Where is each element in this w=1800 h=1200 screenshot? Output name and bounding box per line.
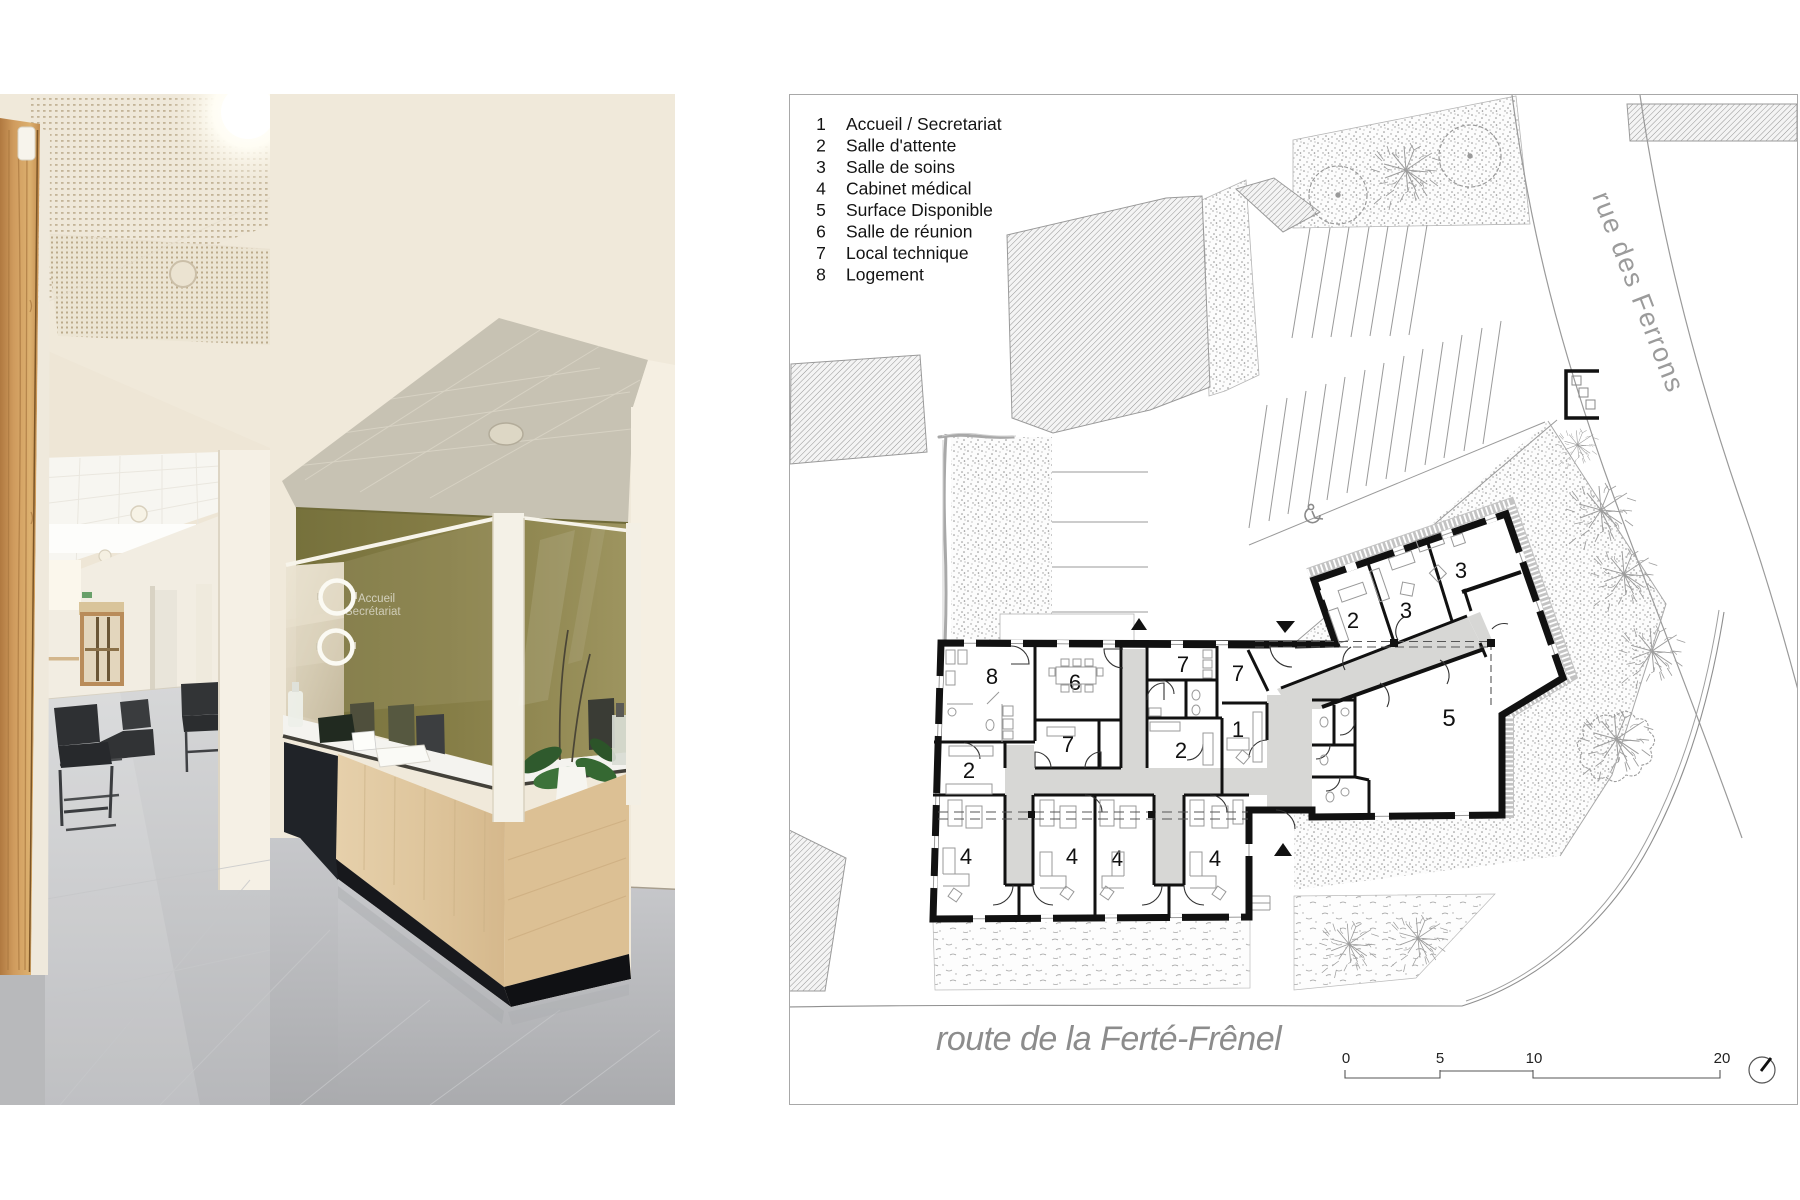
svg-text:2: 2 [1175,738,1187,763]
svg-text:5: 5 [1442,705,1455,732]
svg-text:3: 3 [816,157,826,177]
svg-text:Local technique: Local technique [846,243,969,263]
svg-text:7: 7 [1177,652,1189,677]
svg-text:Salle de soins: Salle de soins [846,157,955,177]
svg-text:2: 2 [1347,608,1359,633]
svg-text:4: 4 [960,844,972,869]
svg-text:2: 2 [816,136,826,156]
svg-text:Salle d'attente: Salle d'attente [846,136,956,156]
svg-text:6: 6 [1069,670,1081,695]
svg-text:2: 2 [963,758,975,783]
svg-text:3: 3 [1455,558,1467,583]
svg-text:Accueil: Accueil [358,593,395,605]
svg-text:3: 3 [1400,598,1412,623]
svg-text:1: 1 [816,114,826,134]
svg-text:5: 5 [816,200,826,220]
svg-text:8: 8 [816,265,826,285]
svg-text:4: 4 [1209,846,1221,871]
svg-text:10: 10 [1526,1050,1543,1067]
svg-text:5: 5 [1436,1050,1444,1067]
svg-text:Secrétariat: Secrétariat [345,606,401,618]
svg-text:4: 4 [1111,846,1123,871]
svg-text:Logement: Logement [846,265,924,285]
svg-text:7: 7 [1232,661,1244,686]
svg-text:20: 20 [1714,1050,1731,1067]
svg-text:Cabinet médical: Cabinet médical [846,179,971,199]
svg-text:8: 8 [986,664,998,689]
svg-text:4: 4 [1066,844,1078,869]
svg-text:Accueil / Secretariat: Accueil / Secretariat [846,114,1002,134]
svg-text:Surface Disponible: Surface Disponible [846,200,993,220]
svg-text:Salle de réunion: Salle de réunion [846,222,972,242]
svg-text:4: 4 [816,179,826,199]
svg-text:7: 7 [816,243,826,263]
svg-text:0: 0 [1342,1050,1350,1067]
svg-text:route de la Ferté-Frênel: route de la Ferté-Frênel [936,1020,1283,1058]
svg-text:6: 6 [816,222,826,242]
